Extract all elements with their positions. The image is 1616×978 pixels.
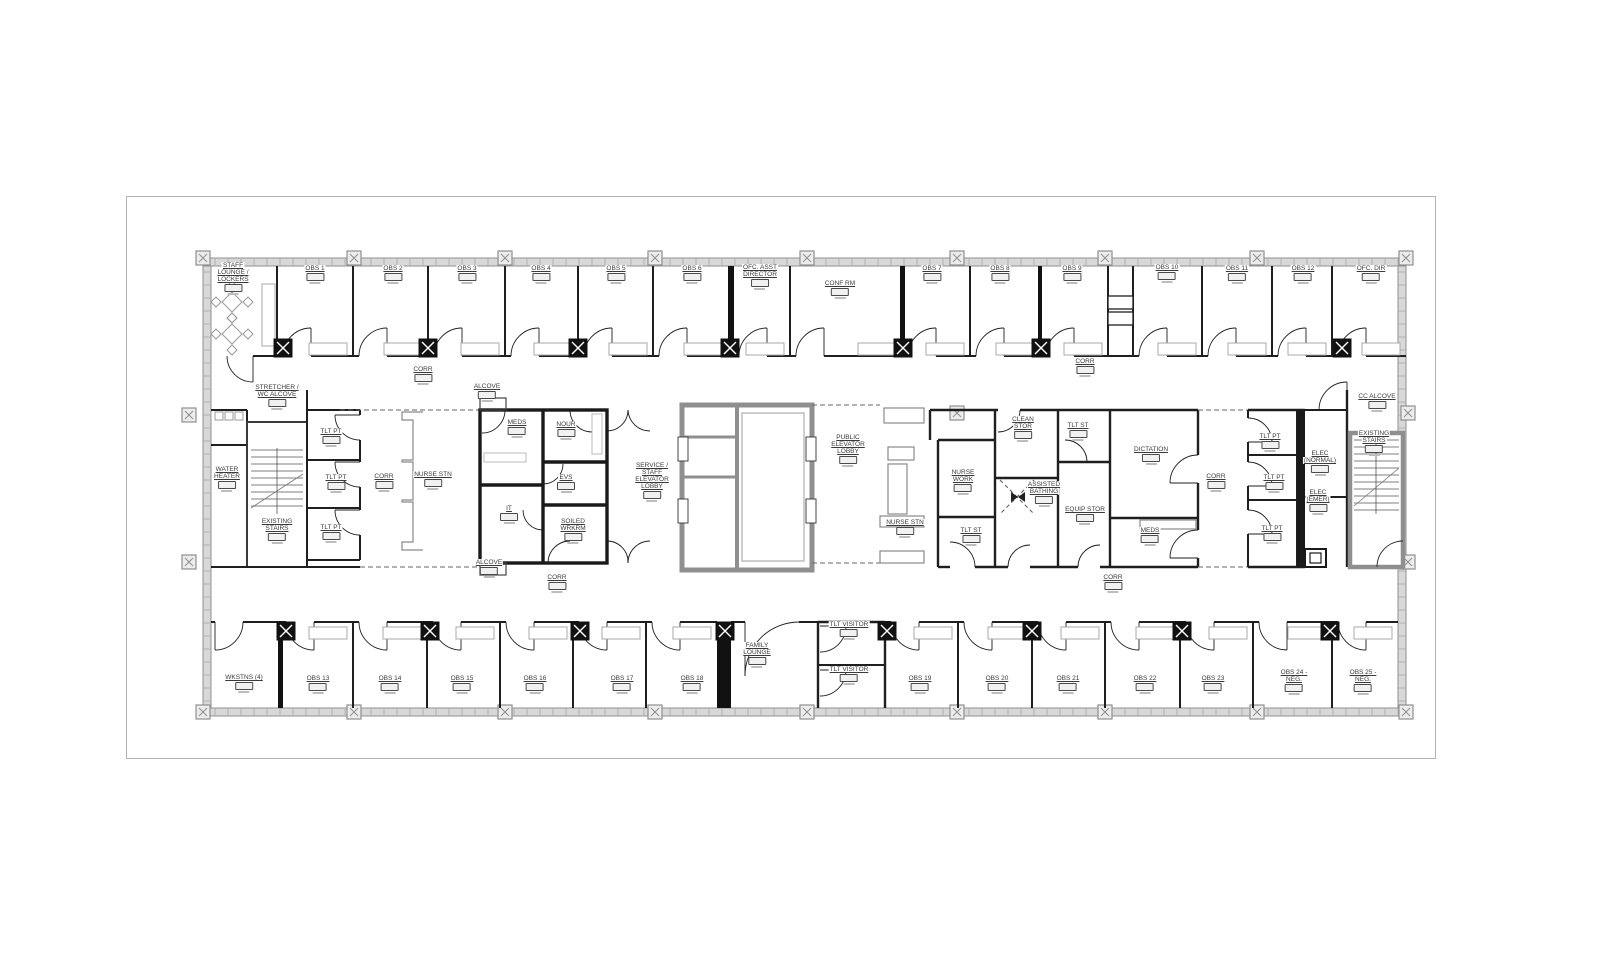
drawing-sheet-border bbox=[126, 196, 1436, 759]
floor-plan-screenshot: { "sheet": { "kind": "architectural floo… bbox=[0, 0, 1616, 978]
